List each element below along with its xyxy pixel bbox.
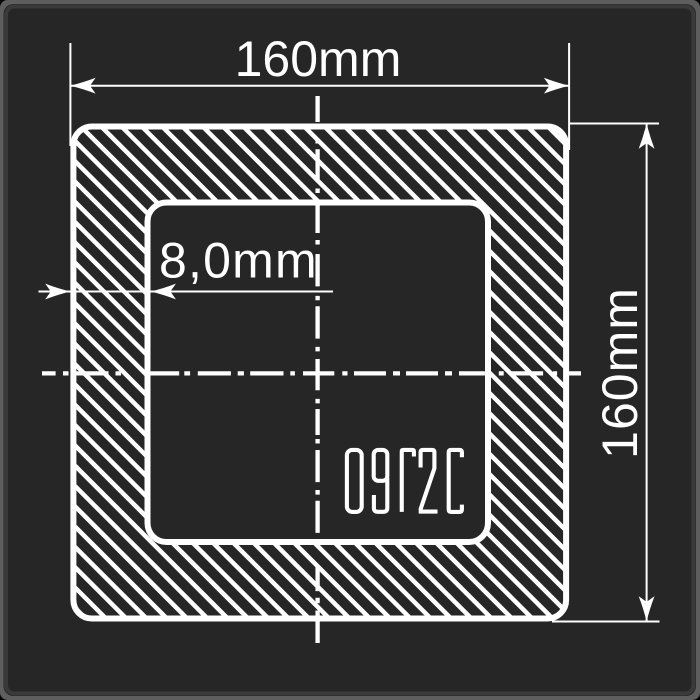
svg-text:160mm: 160mm [235, 31, 402, 87]
svg-text:160mm: 160mm [592, 287, 648, 459]
svg-text:8,0mm: 8,0mm [159, 233, 318, 289]
